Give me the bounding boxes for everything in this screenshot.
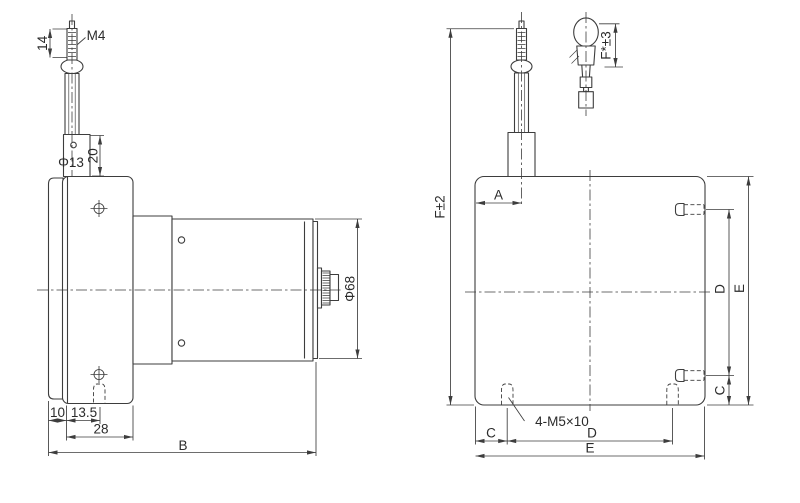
outlet-dia-label: Φ13	[58, 155, 84, 170]
dim-label-B: B	[178, 438, 187, 453]
dim-label-C-side: C	[713, 385, 728, 395]
dim-label-20: 20	[86, 148, 101, 163]
dim-label-C-bottom: C	[486, 426, 496, 441]
dim-label-E-side: E	[732, 284, 747, 293]
technical-drawing: 14 M4 20 Φ13 Φ68 10 13.5	[0, 0, 800, 503]
thread-label: M4	[87, 28, 106, 43]
dim-label-D-bottom: D	[587, 426, 597, 441]
dim-label-D-side: D	[713, 284, 728, 294]
dim-label-F3: F*±3	[599, 31, 614, 59]
dim-label-E-bottom: E	[585, 441, 594, 456]
dim-label-68: Φ68	[343, 276, 358, 302]
dim-label-10: 10	[50, 405, 65, 420]
drawing-canvas: 14 M4 20 Φ13 Φ68 10 13.5	[0, 0, 800, 503]
screw-spec-label: 4-M5×10	[535, 414, 589, 429]
dim-label-F2: F±2	[433, 195, 448, 218]
dim-label-28: 28	[93, 422, 108, 437]
dim-label-A: A	[494, 188, 503, 203]
connector-plug	[330, 275, 339, 301]
dim-label-13-5: 13.5	[71, 405, 97, 420]
back-plate	[49, 178, 64, 399]
connector-flange	[318, 268, 322, 308]
dim-label-14: 14	[35, 35, 50, 51]
